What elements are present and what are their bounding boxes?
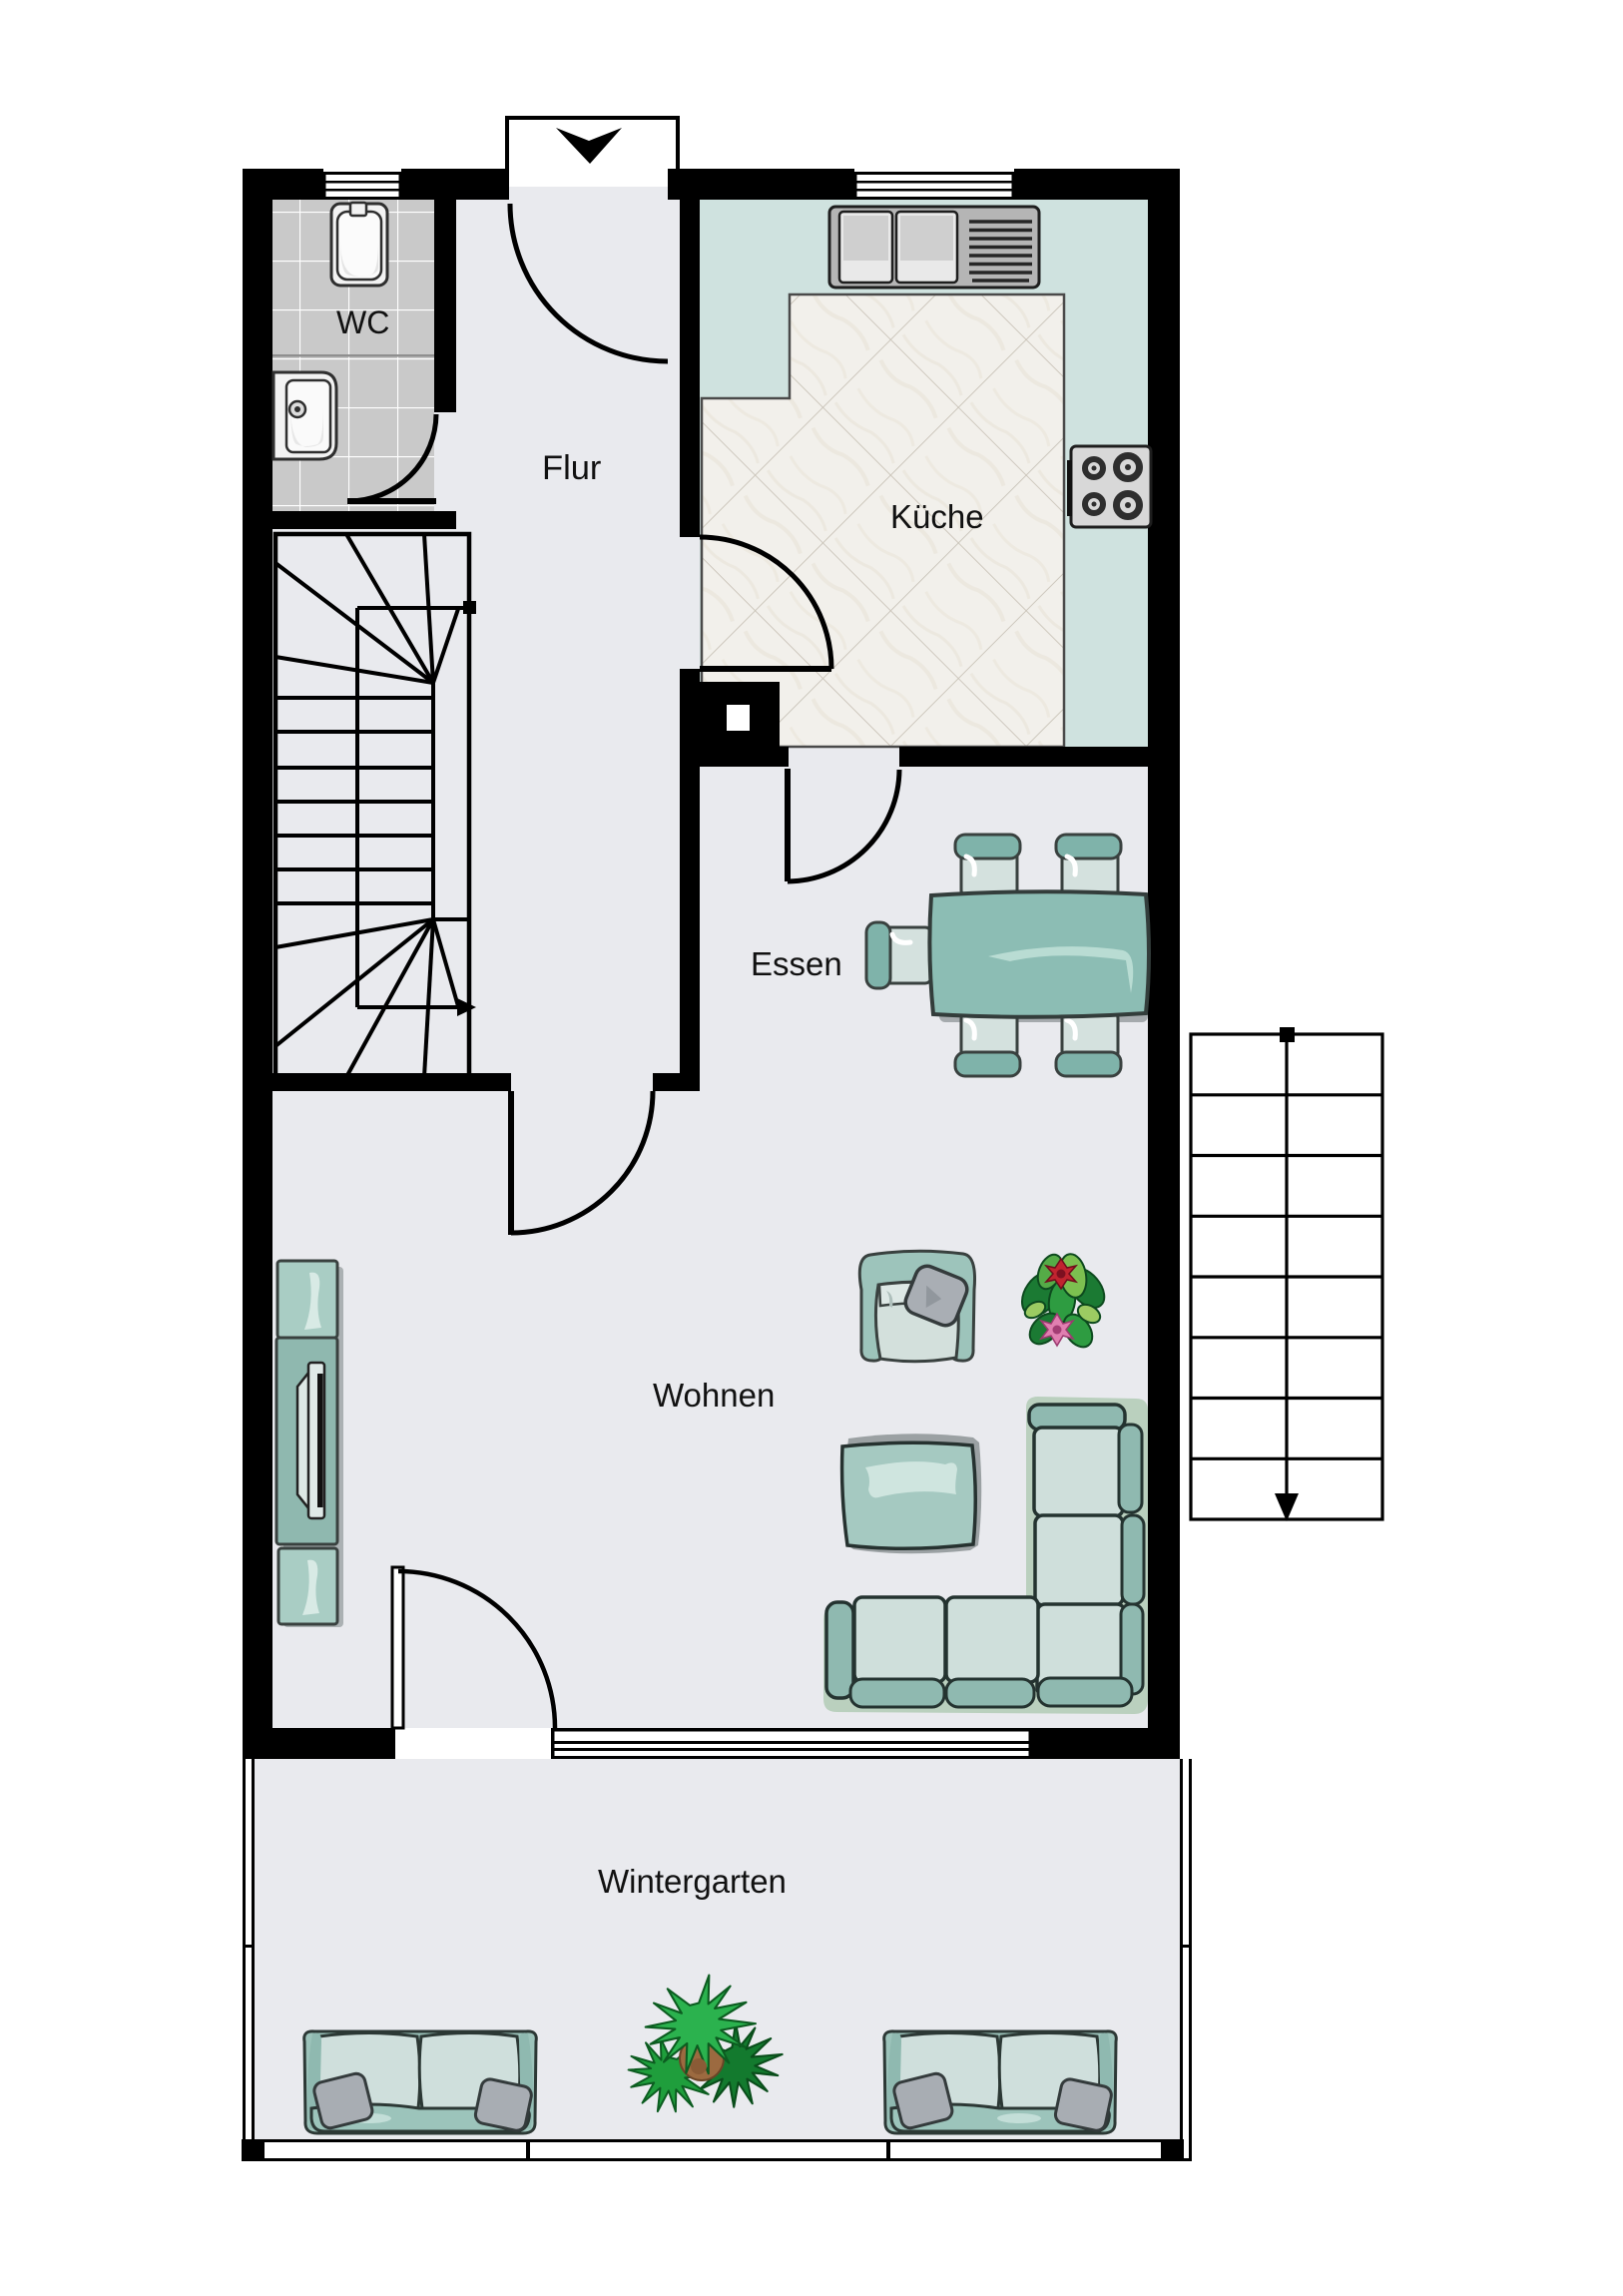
svg-text:Essen: Essen bbox=[751, 945, 842, 982]
svg-text:Flur: Flur bbox=[542, 449, 601, 487]
svg-text:Wohnen: Wohnen bbox=[653, 1377, 775, 1414]
svg-text:Wintergarten: Wintergarten bbox=[598, 1863, 787, 1900]
svg-text:Küche: Küche bbox=[890, 498, 984, 535]
svg-text:WC: WC bbox=[336, 304, 389, 340]
